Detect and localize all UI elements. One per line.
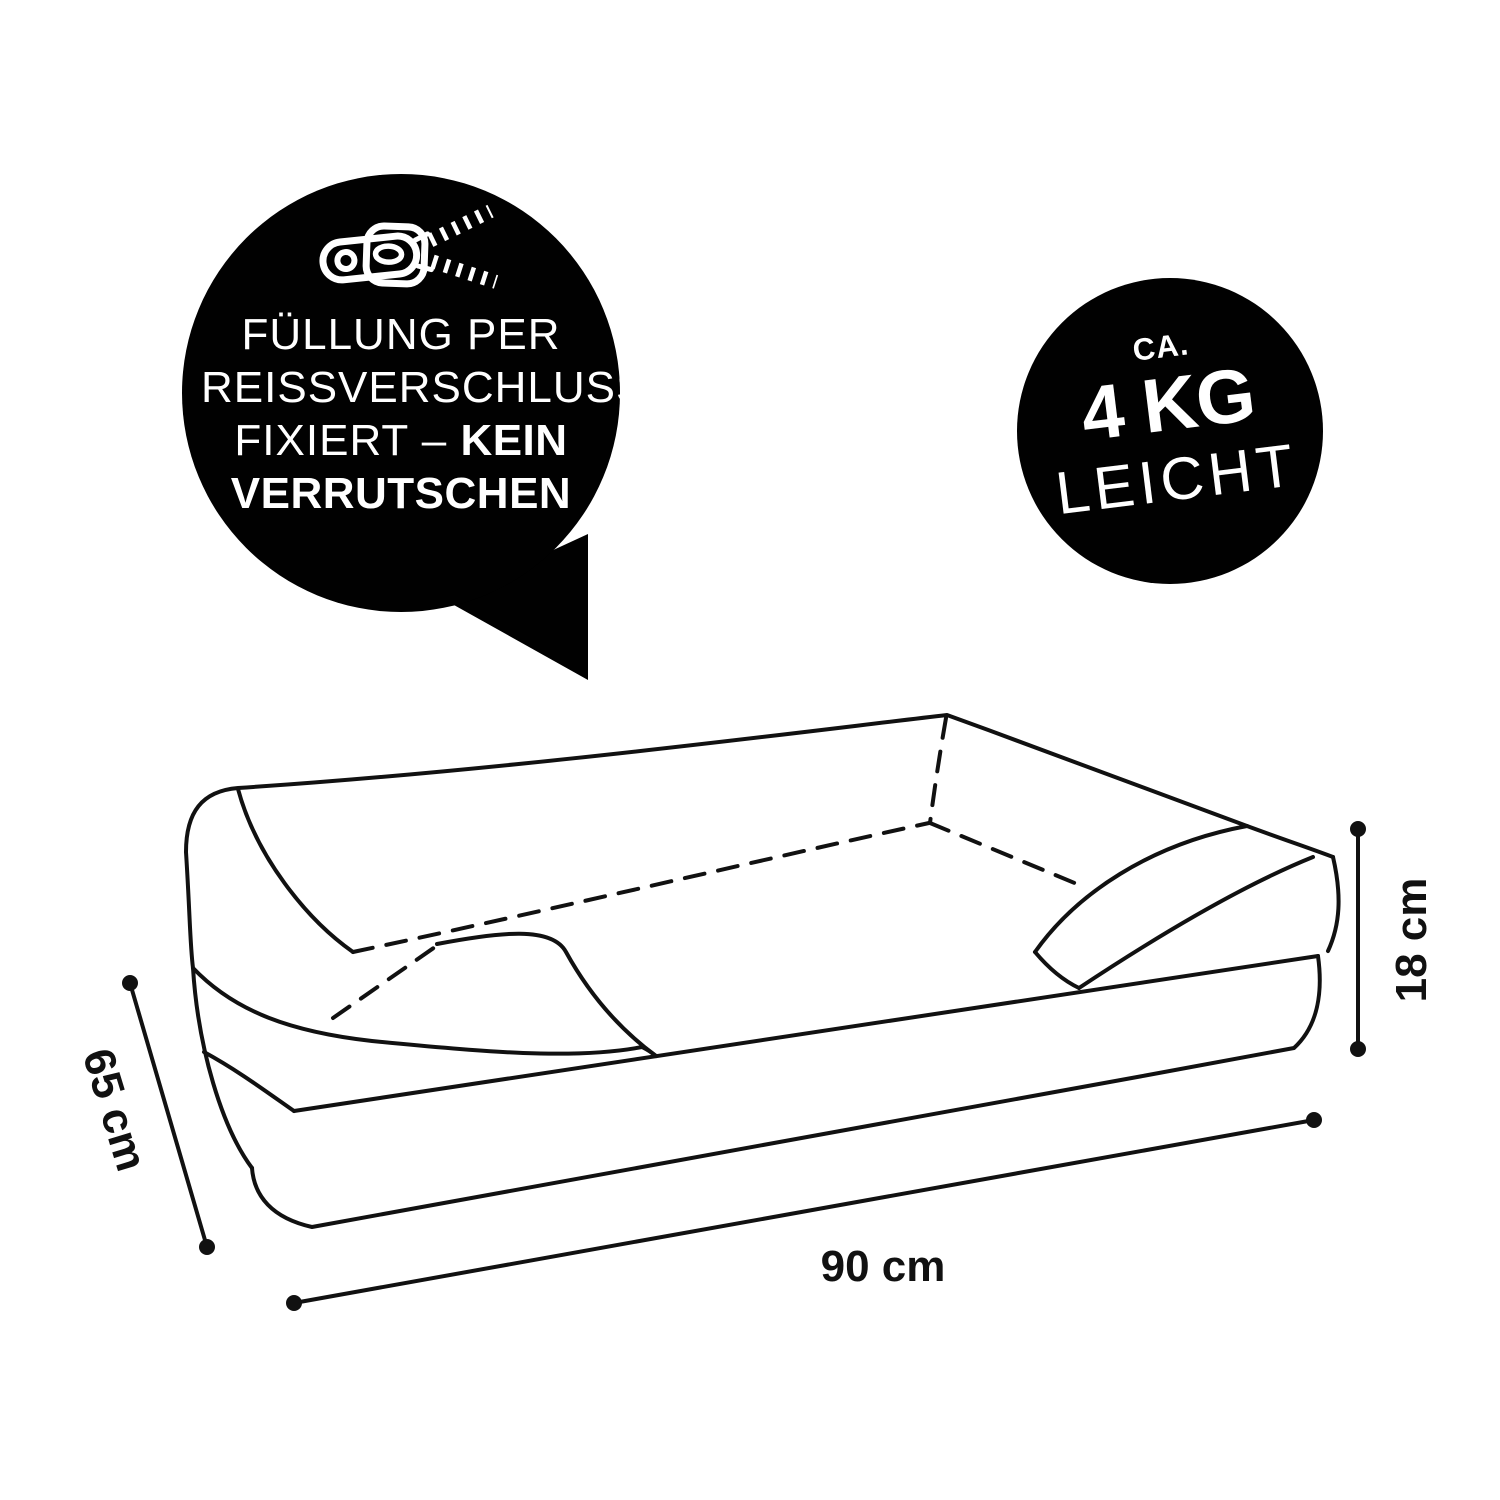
bed-back-inner-ridge [238,789,353,952]
bed-right-arm-tip [1035,952,1079,988]
bed-back-top-edge [186,715,1333,857]
diagram-artwork [0,0,1500,1500]
bed-right-arm-end [1328,857,1339,951]
height-dimension-label: 18 cm [1387,878,1437,1003]
bubble-line-3-regular: FIXIERT – [234,416,460,465]
width-dimension-label: 90 cm [821,1242,946,1292]
height-dim-dot-bottom [1350,1041,1366,1057]
width-dimension-line [294,1120,1314,1303]
bubble-line-1: FÜLLUNG PER [201,308,601,361]
bed-left-silhouette [186,852,252,1168]
bubble-line-3-bold: KEIN [460,416,567,465]
bed-right-arm-outer [1035,826,1247,952]
depth-dim-dot-bottom [199,1239,215,1255]
height-dim-dot-top [1350,821,1366,837]
bed-left-arm-outer [193,968,642,1054]
bubble-line-2: REISSVERSCHLUSS [201,361,601,414]
bed-hidden-left-arm-base [333,947,435,1018]
zipper-bubble-text: FÜLLUNG PER REISSVERSCHLUSS FIXIERT – KE… [201,308,601,520]
bed-hidden-inner-back [353,823,929,952]
weight-badge-text: CA. 4 KG LEICHT [1000,310,1340,534]
depth-dim-dot-top [122,975,138,991]
bed-hidden-inner-right [930,823,1077,884]
bed-front-top-edge [294,956,1318,1111]
infographic-canvas: FÜLLUNG PER REISSVERSCHLUSS FIXIERT – KE… [0,0,1500,1500]
bubble-line-4: VERRUTSCHEN [201,467,601,520]
bed-hidden-back-corner [930,718,946,823]
bed-hidden-edges [333,718,1077,1018]
dimension-lines [122,821,1366,1311]
bubble-line-3: FIXIERT – KEIN [201,414,601,467]
bed-drawing [186,715,1339,1227]
width-dim-dot-left [286,1295,302,1311]
width-dim-dot-right [1306,1112,1322,1128]
bed-left-arm-inner [437,934,656,1056]
